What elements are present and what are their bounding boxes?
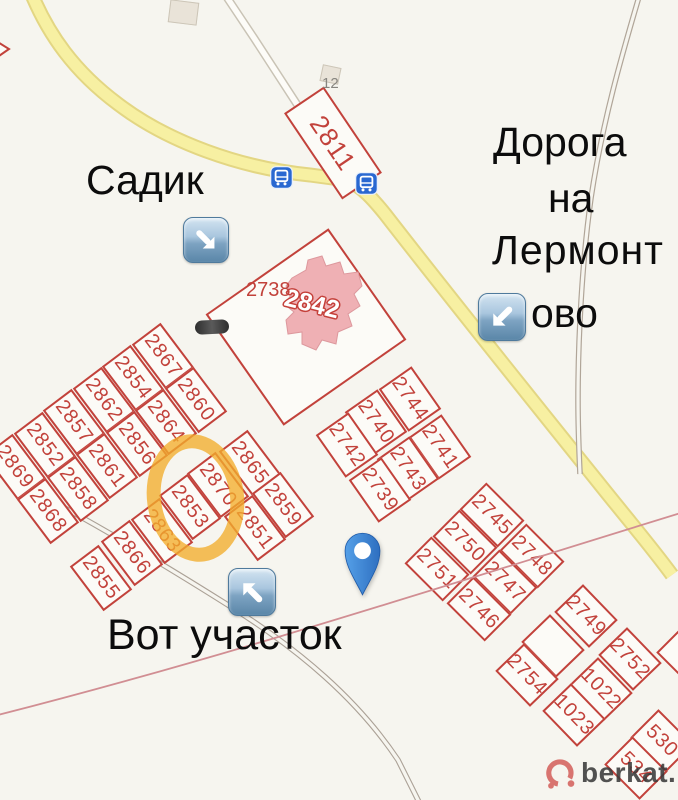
house-number-label: 12 bbox=[322, 76, 339, 91]
here-is-plot-label: Вот участок bbox=[107, 612, 342, 659]
watermark-logo-icon bbox=[544, 753, 578, 793]
road-label-line2: на bbox=[548, 176, 593, 221]
arrow-glyph bbox=[189, 223, 223, 257]
map-pin-icon[interactable] bbox=[342, 528, 383, 598]
parcel-2738-label: 2738 bbox=[246, 280, 291, 300]
watermark: berkat. bbox=[544, 753, 676, 793]
map-canvas[interactable]: 2811286728542862285728522869286028642856… bbox=[0, 0, 678, 800]
car-icon bbox=[195, 319, 230, 335]
building-top-left bbox=[168, 0, 200, 26]
road-label-line3: Лермонт bbox=[492, 228, 664, 273]
watermark-text: berkat. bbox=[581, 757, 676, 789]
blue-arrow-down-left-icon bbox=[478, 293, 526, 341]
blue-arrow-up-left-icon bbox=[228, 568, 276, 616]
road-label-line1: Дорога bbox=[493, 120, 627, 165]
bus-stop-icon bbox=[355, 172, 378, 195]
arrow-glyph bbox=[234, 574, 270, 610]
road-label-line4: ово bbox=[531, 291, 598, 336]
kindergarten-label: Садик bbox=[86, 158, 204, 203]
bus-stop-icon bbox=[270, 166, 293, 189]
blue-arrow-down-right-icon bbox=[183, 217, 229, 263]
arrow-glyph bbox=[484, 299, 520, 335]
